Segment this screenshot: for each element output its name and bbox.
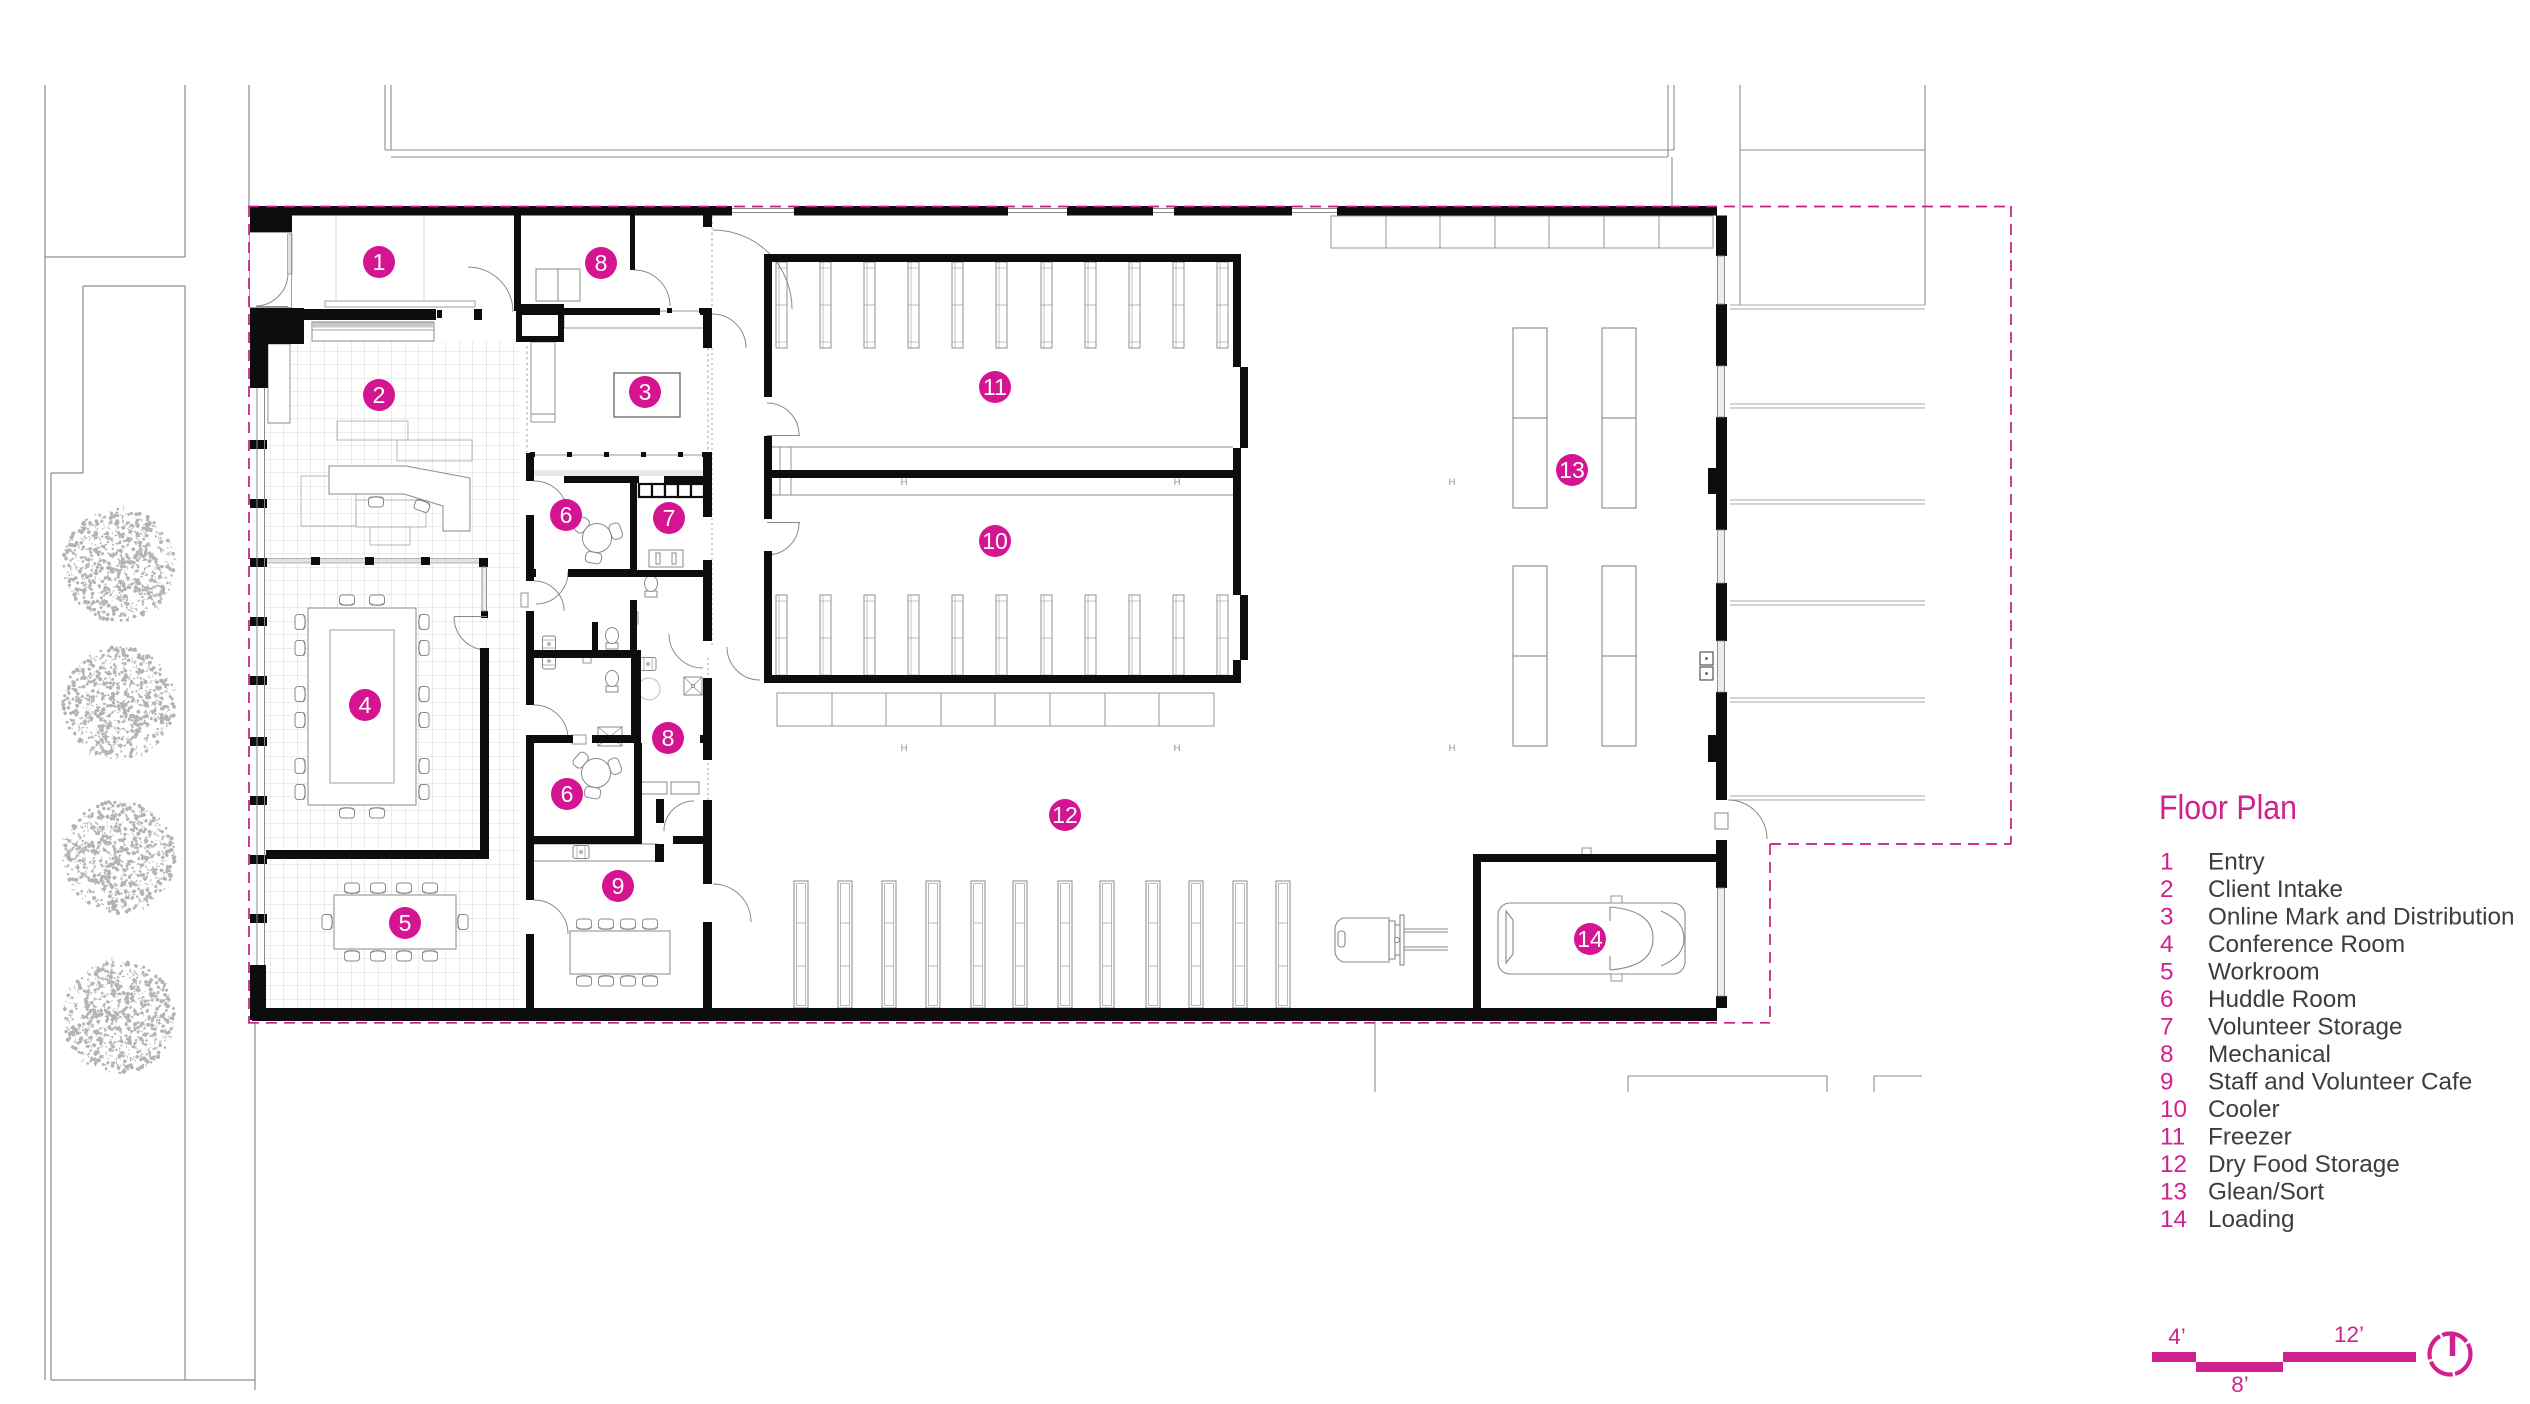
svg-text:Workroom: Workroom: [2208, 959, 2320, 986]
svg-text:4: 4: [359, 692, 372, 718]
svg-text:11: 11: [2160, 1124, 2185, 1151]
svg-text:2: 2: [2160, 876, 2174, 903]
svg-text:7: 7: [2160, 1014, 2174, 1041]
svg-text:8: 8: [2160, 1041, 2174, 1068]
svg-text:13: 13: [2160, 1179, 2187, 1206]
svg-text:Client Intake: Client Intake: [2208, 876, 2343, 903]
svg-text:1: 1: [2160, 849, 2174, 876]
svg-text:Freezer: Freezer: [2208, 1124, 2292, 1151]
svg-text:6: 6: [2160, 986, 2174, 1013]
svg-text:2: 2: [373, 382, 386, 408]
svg-text:8’: 8’: [2231, 1372, 2249, 1397]
svg-text:6: 6: [560, 502, 573, 528]
svg-text:H: H: [901, 477, 908, 488]
svg-text:11: 11: [983, 374, 1007, 400]
svg-text:8: 8: [662, 725, 675, 751]
svg-text:Entry: Entry: [2208, 849, 2266, 876]
svg-text:1: 1: [373, 249, 386, 275]
svg-text:Conference Room: Conference Room: [2208, 931, 2405, 958]
svg-text:H: H: [1449, 743, 1456, 754]
svg-text:12: 12: [2160, 1151, 2187, 1178]
svg-text:4: 4: [2160, 931, 2174, 958]
svg-text:6: 6: [561, 781, 574, 807]
svg-text:H: H: [1174, 743, 1181, 754]
svg-text:Mechanical: Mechanical: [2208, 1041, 2331, 1068]
svg-text:4’: 4’: [2168, 1324, 2186, 1349]
svg-text:10: 10: [982, 528, 1008, 554]
svg-text:Floor Plan: Floor Plan: [2159, 789, 2297, 827]
svg-text:Dry Food Storage: Dry Food Storage: [2208, 1151, 2400, 1178]
svg-text:5: 5: [2160, 959, 2174, 986]
svg-text:H: H: [1174, 477, 1181, 488]
svg-text:3: 3: [2160, 904, 2174, 931]
svg-text:Huddle Room: Huddle Room: [2208, 986, 2357, 1013]
svg-text:Cooler: Cooler: [2208, 1096, 2280, 1123]
svg-text:9: 9: [2160, 1069, 2174, 1096]
svg-text:Volunteer Storage: Volunteer Storage: [2208, 1014, 2403, 1041]
svg-text:10: 10: [2160, 1096, 2187, 1123]
svg-text:H: H: [901, 743, 908, 754]
svg-text:14: 14: [1577, 926, 1603, 952]
svg-text:8: 8: [595, 250, 608, 276]
svg-text:Glean/Sort: Glean/Sort: [2208, 1179, 2324, 1206]
svg-text:13: 13: [1559, 457, 1585, 483]
svg-text:H: H: [1449, 477, 1456, 488]
svg-text:14: 14: [2160, 1206, 2187, 1233]
svg-text:9: 9: [612, 873, 625, 899]
svg-text:12: 12: [1052, 802, 1078, 828]
svg-text:Online Mark and Distribution: Online Mark and Distribution: [2208, 904, 2515, 931]
svg-text:Loading: Loading: [2208, 1206, 2294, 1233]
svg-text:5: 5: [399, 910, 412, 936]
svg-text:7: 7: [663, 505, 676, 531]
svg-text:Staff and Volunteer Cafe: Staff and Volunteer Cafe: [2208, 1069, 2472, 1096]
svg-text:12’: 12’: [2334, 1322, 2364, 1347]
svg-text:3: 3: [639, 379, 652, 405]
